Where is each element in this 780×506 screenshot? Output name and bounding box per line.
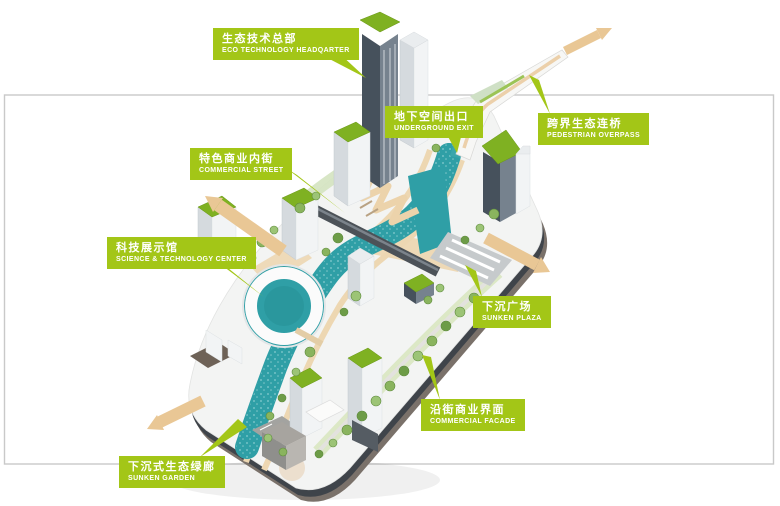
label-en: SUNKEN GARDEN — [128, 474, 216, 483]
ring-building — [243, 265, 325, 347]
tower-east-slab — [516, 146, 530, 214]
label-en: ECO TECHNOLOGY HEADQARTER — [222, 46, 350, 55]
label-zh: 下沉式生态绿廊 — [128, 460, 216, 474]
label-en: COMMERCIAL STREET — [199, 166, 283, 175]
label-sunken-plaza: 下沉广场 SUNKEN PLAZA — [473, 296, 551, 328]
tower-commercial-street-a — [334, 122, 370, 206]
label-zh: 科技展示馆 — [116, 241, 247, 255]
label-zh: 跨界生态连桥 — [547, 117, 640, 131]
arrow-overpass-up-right — [565, 28, 612, 51]
label-zh: 地下空间出口 — [394, 110, 474, 124]
label-en: COMMERCIAL FACADE — [430, 417, 516, 426]
label-science-technology-center: 科技展示馆 SCIENCE & TECHNOLOGY CENTER — [107, 237, 256, 269]
label-zh: 沿街商业界面 — [430, 403, 516, 417]
label-en: SUNKEN PLAZA — [482, 314, 542, 323]
label-zh: 生态技术总部 — [222, 32, 350, 46]
label-sunken-garden: 下沉式生态绿廊 SUNKEN GARDEN — [119, 456, 225, 488]
label-zh: 特色商业内街 — [199, 152, 283, 166]
label-en: SCIENCE & TECHNOLOGY CENTER — [116, 255, 247, 264]
masterplan-diagram: 生态技术总部 ECO TECHNOLOGY HEADQARTER 地下空间出口 … — [0, 0, 780, 506]
label-underground-exit: 地下空间出口 UNDERGROUND EXIT — [385, 106, 483, 138]
label-en: UNDERGROUND EXIT — [394, 124, 474, 133]
label-pedestrian-overpass: 跨界生态连桥 PEDESTRIAN OVERPASS — [538, 113, 649, 145]
label-eco-technology-headquarter: 生态技术总部 ECO TECHNOLOGY HEADQARTER — [213, 28, 359, 60]
label-en: PEDESTRIAN OVERPASS — [547, 131, 640, 140]
label-commercial-street: 特色商业内街 COMMERCIAL STREET — [190, 148, 292, 180]
label-zh: 下沉广场 — [482, 300, 542, 314]
tower-commercial-street-b — [282, 188, 318, 260]
label-commercial-facade: 沿街商业界面 COMMERCIAL FACADE — [421, 399, 525, 431]
